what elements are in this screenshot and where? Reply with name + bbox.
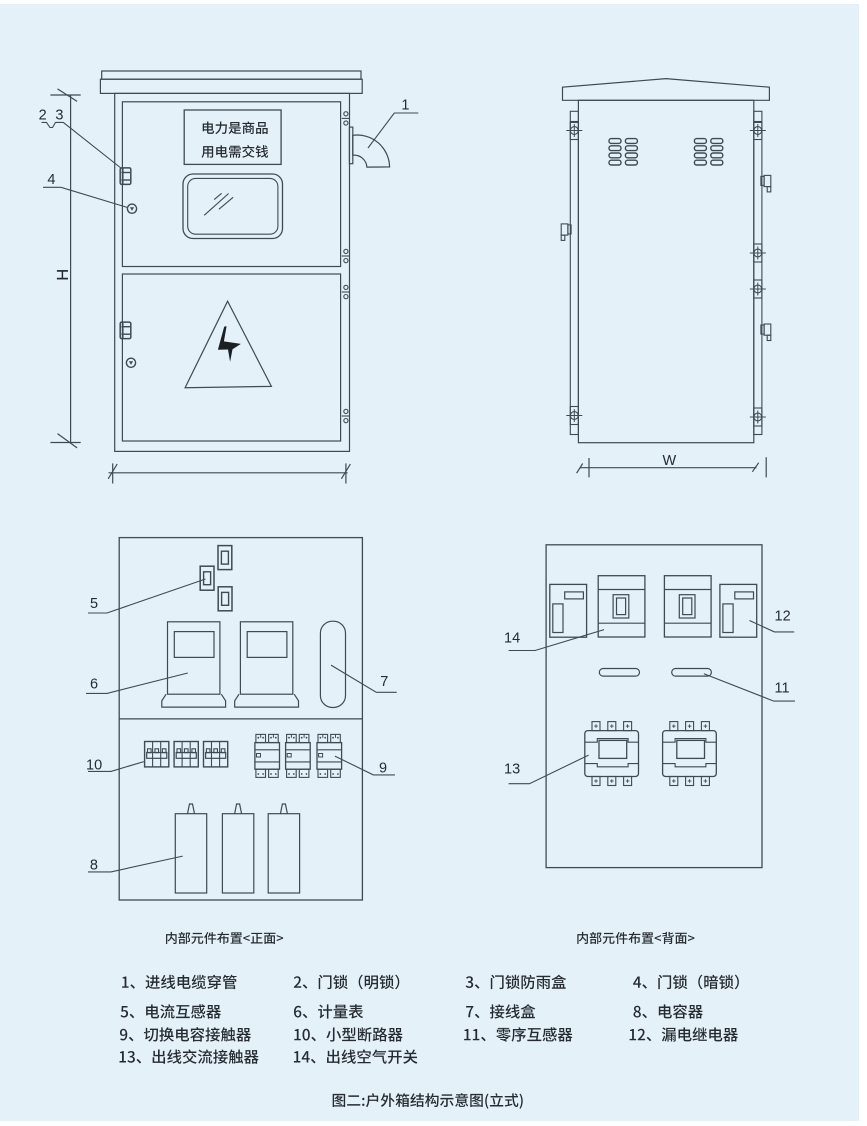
svg-text:11: 11 — [775, 681, 790, 697]
svg-text:3: 3 — [55, 107, 63, 123]
svg-text:5: 5 — [90, 596, 98, 612]
svg-text:13: 13 — [504, 761, 520, 777]
svg-text:2: 2 — [39, 107, 47, 123]
svg-text:4: 4 — [47, 172, 55, 188]
svg-text:6: 6 — [90, 676, 98, 692]
svg-text:8: 8 — [90, 858, 98, 874]
svg-text:14: 14 — [504, 631, 520, 647]
svg-text:W: W — [663, 453, 677, 469]
svg-text:9: 9 — [379, 761, 387, 777]
svg-text:7: 7 — [380, 674, 388, 690]
svg-text:1: 1 — [401, 97, 409, 113]
svg-text:12: 12 — [775, 609, 791, 625]
